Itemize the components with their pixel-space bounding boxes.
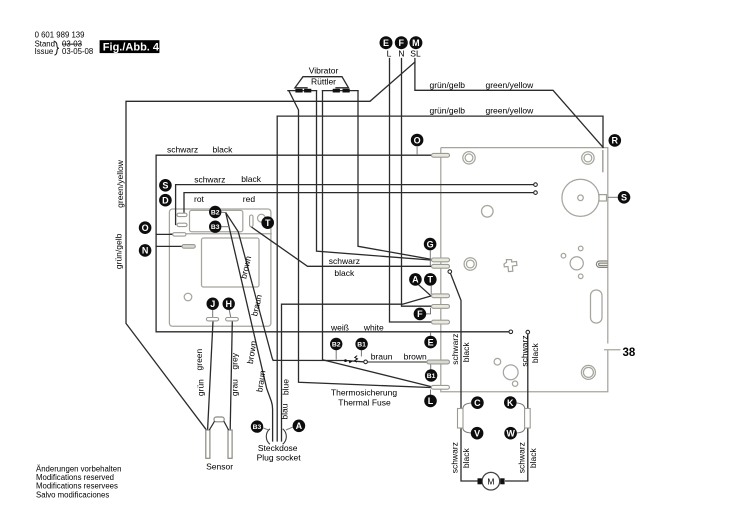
svg-text:black: black <box>213 145 234 155</box>
svg-text:F: F <box>399 38 405 48</box>
svg-text:black: black <box>241 174 262 184</box>
svg-text:black: black <box>530 343 540 364</box>
svg-text:weiß: weiß <box>330 323 349 333</box>
svg-text:B2: B2 <box>211 209 220 216</box>
svg-text:black: black <box>461 448 471 469</box>
svg-text:Vibrator: Vibrator <box>309 65 339 75</box>
svg-text:grün/gelb: grün/gelb <box>430 106 466 116</box>
svg-text:Plug socket: Plug socket <box>257 453 302 463</box>
svg-text:Fig./Abb. 4: Fig./Abb. 4 <box>103 42 160 54</box>
svg-text:red: red <box>243 194 256 204</box>
svg-text:Sensor: Sensor <box>206 461 233 471</box>
svg-text:03-05-08: 03-05-08 <box>62 47 93 56</box>
svg-text:A: A <box>296 421 303 431</box>
svg-text:grün/gelb: grün/gelb <box>114 233 124 269</box>
svg-text:Issue: Issue <box>35 47 54 56</box>
svg-text:B2: B2 <box>332 341 341 348</box>
svg-text:Thermal Fuse: Thermal Fuse <box>338 398 391 408</box>
svg-text:rot: rot <box>194 194 205 204</box>
svg-text:grün: grün <box>196 379 206 396</box>
svg-text:grey: grey <box>230 352 240 369</box>
svg-text:Salvo modificaciones: Salvo modificaciones <box>36 490 109 499</box>
svg-text:schwarz: schwarz <box>329 256 360 266</box>
svg-text:blau: blau <box>280 403 290 419</box>
svg-text:O: O <box>142 223 149 233</box>
svg-text:B3: B3 <box>253 424 262 431</box>
svg-text:W: W <box>506 429 515 439</box>
svg-text:black: black <box>334 268 355 278</box>
svg-text:T: T <box>428 275 434 285</box>
svg-text:white: white <box>363 323 384 333</box>
svg-text:38: 38 <box>623 347 636 359</box>
svg-text:L: L <box>387 49 392 59</box>
svg-text:braun: braun <box>371 351 393 361</box>
svg-text:E: E <box>383 38 389 48</box>
svg-text:0 601 989 139: 0 601 989 139 <box>35 30 85 39</box>
svg-text:black: black <box>528 448 538 469</box>
svg-text:Thermosicherung: Thermosicherung <box>331 388 397 398</box>
svg-text:J: J <box>210 299 215 309</box>
svg-text:G: G <box>427 239 434 249</box>
svg-text:schwarz: schwarz <box>450 442 460 473</box>
svg-text:S: S <box>162 181 168 191</box>
svg-text:green/yellow: green/yellow <box>486 106 535 116</box>
svg-text:B1: B1 <box>427 373 436 380</box>
svg-text:F: F <box>417 309 423 319</box>
svg-text:R: R <box>612 136 619 146</box>
svg-text:black: black <box>461 342 471 363</box>
svg-text:H: H <box>225 299 232 309</box>
svg-text:S: S <box>621 193 627 203</box>
svg-text:green/yellow: green/yellow <box>486 80 535 90</box>
svg-text:schwarz: schwarz <box>520 335 530 366</box>
svg-text:schwarz: schwarz <box>517 442 527 473</box>
svg-text:T: T <box>265 218 271 228</box>
svg-text:green/yellow: green/yellow <box>115 159 125 208</box>
svg-text:brown: brown <box>404 351 427 361</box>
svg-text:schwarz: schwarz <box>167 145 198 155</box>
svg-text:grau: grau <box>230 379 240 396</box>
svg-text:Rüttler: Rüttler <box>311 77 336 87</box>
svg-text:K: K <box>507 398 514 408</box>
svg-text:C: C <box>474 398 481 408</box>
svg-text:O: O <box>414 135 421 145</box>
svg-text:M: M <box>487 476 494 486</box>
svg-text:schwarz: schwarz <box>450 334 460 365</box>
svg-text:grün/gelb: grün/gelb <box>430 80 466 90</box>
svg-text:M: M <box>412 38 420 48</box>
svg-text:D: D <box>162 196 169 206</box>
svg-text:blue: blue <box>281 379 291 395</box>
svg-text:A: A <box>412 275 419 285</box>
svg-text:schwarz: schwarz <box>194 174 225 184</box>
svg-text:B3: B3 <box>211 224 220 231</box>
svg-text:B1: B1 <box>357 341 366 348</box>
svg-text:V: V <box>474 429 480 439</box>
svg-text:green: green <box>194 348 204 370</box>
svg-text:N: N <box>142 246 149 256</box>
svg-text:N: N <box>398 49 404 59</box>
svg-text:Änderungen vorbehalten: Änderungen vorbehalten <box>36 464 121 473</box>
svg-text:E: E <box>428 337 434 347</box>
svg-text:SL: SL <box>410 49 421 59</box>
svg-text:L: L <box>428 396 434 406</box>
svg-text:Modifications reserved: Modifications reserved <box>36 473 114 482</box>
svg-text:Modifications reservees: Modifications reservees <box>36 482 118 491</box>
